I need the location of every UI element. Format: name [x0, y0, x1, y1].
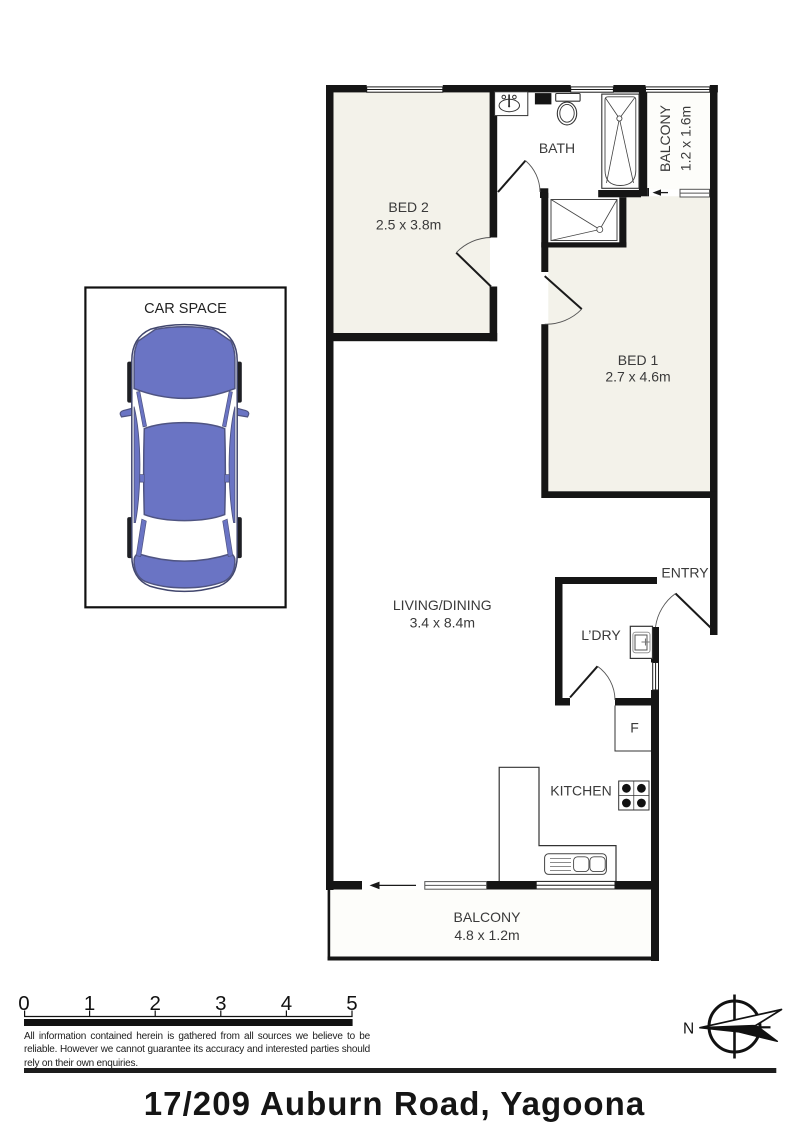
svg-text:BALCONY: BALCONY: [454, 909, 522, 925]
svg-text:BATH: BATH: [539, 140, 575, 156]
svg-text:BED 1: BED 1: [618, 352, 659, 368]
svg-text:2.5 x 3.8m: 2.5 x 3.8m: [376, 216, 441, 232]
svg-text:ENTRY: ENTRY: [661, 565, 709, 581]
svg-text:CAR SPACE: CAR SPACE: [144, 301, 227, 317]
svg-text:4.8 x 1.2m: 4.8 x 1.2m: [454, 927, 519, 943]
svg-text:17/209 Auburn Road, Yagoona: 17/209 Auburn Road, Yagoona: [144, 1085, 645, 1122]
svg-text:3.4 x 8.4m: 3.4 x 8.4m: [410, 615, 475, 631]
svg-text:1.2 x 1.6m: 1.2 x 1.6m: [678, 106, 694, 171]
svg-text:KITCHEN: KITCHEN: [550, 783, 611, 799]
svg-text:L’DRY: L’DRY: [581, 627, 621, 643]
svg-text:BALCONY: BALCONY: [657, 104, 673, 172]
svg-text:N: N: [683, 1021, 694, 1038]
svg-text:2.7 x 4.6m: 2.7 x 4.6m: [605, 369, 670, 385]
svg-text:LIVING/DINING: LIVING/DINING: [393, 597, 492, 613]
svg-text:F: F: [630, 720, 639, 736]
svg-text:BED 2: BED 2: [388, 199, 429, 215]
